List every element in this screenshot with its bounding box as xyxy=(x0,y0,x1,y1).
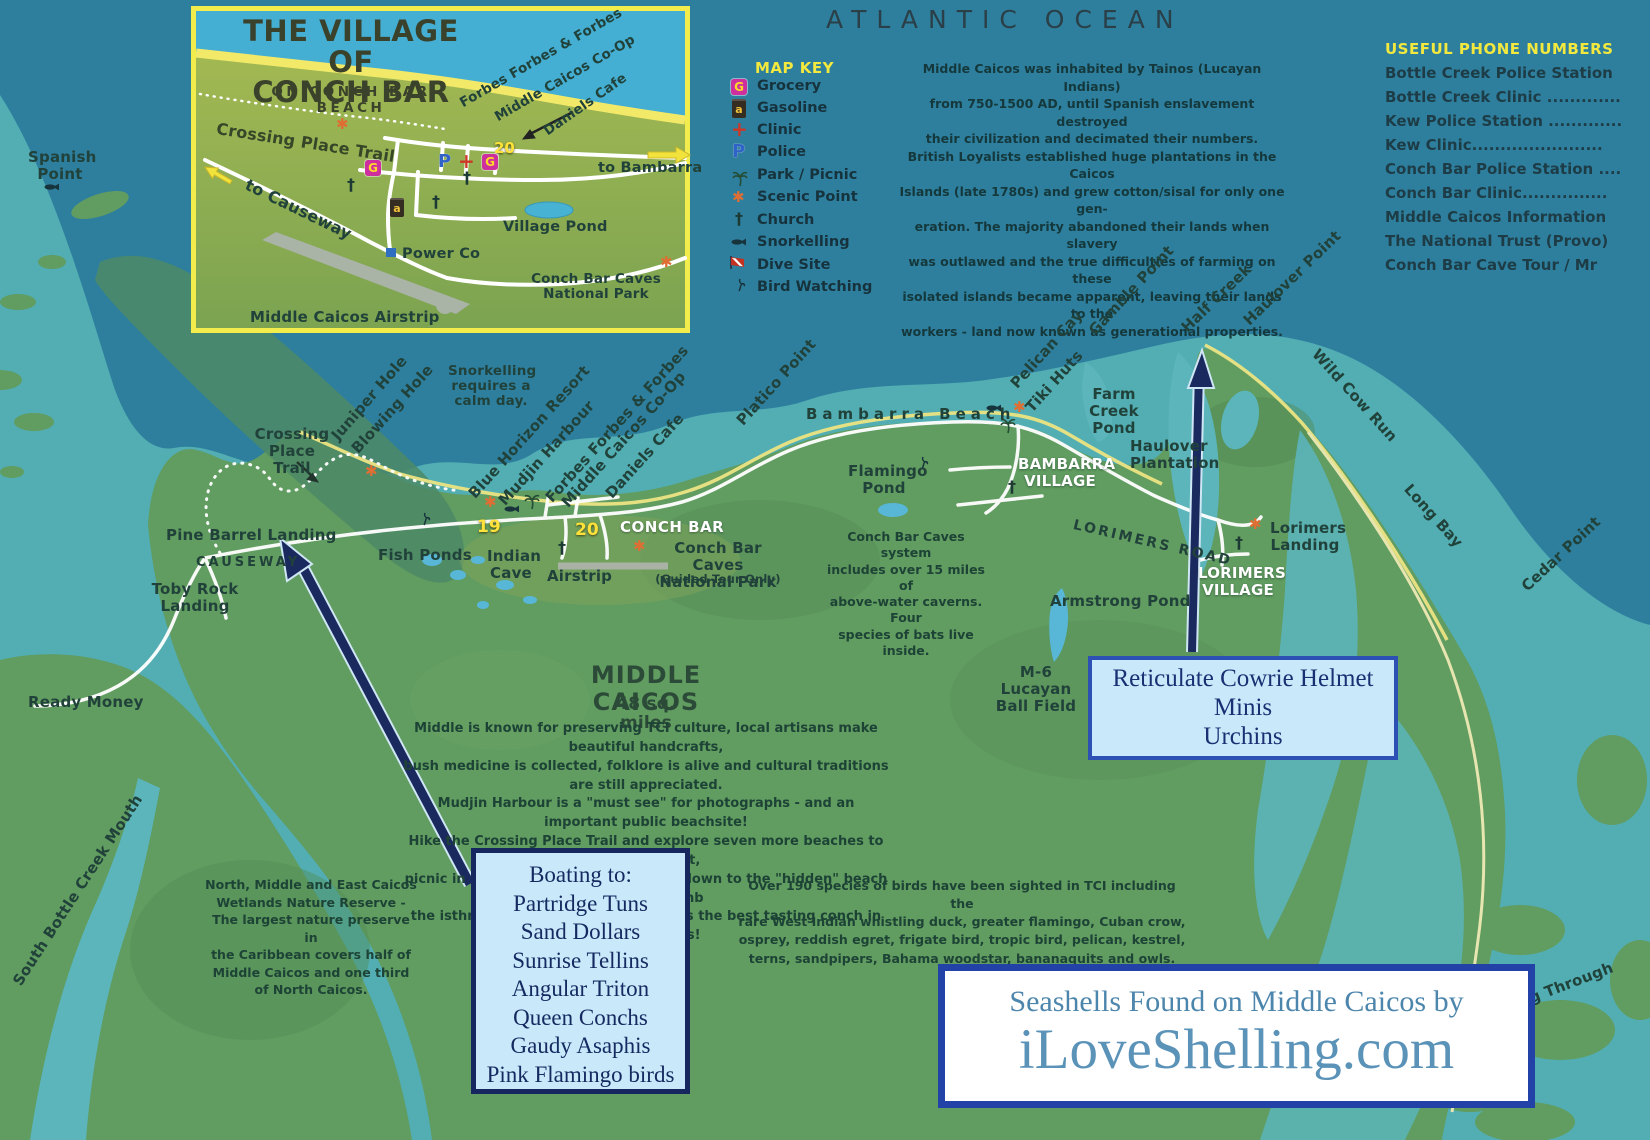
inset-airstrip-label: Middle Caicos Airstrip xyxy=(250,309,440,326)
church-icon: † xyxy=(347,177,355,193)
grocery-icon: G xyxy=(731,79,747,95)
phone-numbers-title: USEFUL PHONE NUMBERS xyxy=(1385,40,1613,58)
church-icon: † xyxy=(1008,479,1016,495)
caves-paragraph: Conch Bar Caves system includes over 15 … xyxy=(822,529,990,659)
key-label-police: Police xyxy=(757,144,806,160)
key-label-dive: Dive Site xyxy=(757,257,831,273)
park-picnic-icon xyxy=(730,165,750,185)
label-pine-barrel: Pine Barrel Landing xyxy=(166,527,337,544)
key-label-grocery: Grocery xyxy=(757,78,821,94)
reticulate-line: Reticulate Cowrie Helmet xyxy=(1092,664,1394,693)
scenic-point-icon: ✱ xyxy=(365,464,378,479)
scenic-point-icon: ✱ xyxy=(336,117,349,132)
phone-item: Conch Bar Cave Tour / Mr xyxy=(1385,256,1597,274)
boating-line: Sunrise Tellins xyxy=(476,947,685,976)
inset-to-bambarra: to Bambarra xyxy=(598,160,702,176)
scenic-point-icon: ✱ xyxy=(633,539,646,554)
shelling-site-name[interactable]: iLoveShelling.com xyxy=(945,1019,1528,1082)
wetlands-paragraph: North, Middle and East Caicos Wetlands N… xyxy=(205,876,417,999)
grocery-icon: G xyxy=(482,154,498,170)
label-haulover-plantation: Haulover Plantation xyxy=(1130,438,1202,472)
police-icon: P xyxy=(732,143,745,161)
phone-item: Kew Police Station ............. xyxy=(1385,112,1622,130)
key-label-gasoline: Gasoline xyxy=(757,100,827,116)
label-bambarra-beach: Bambarra Beach xyxy=(806,406,1015,423)
snorkelling-icon xyxy=(726,232,746,252)
boating-line: Partridge Tuns xyxy=(476,890,685,919)
phone-item: Bottle Creek Police Station xyxy=(1385,64,1613,82)
inset-subtitle: ON CONCH BAR BEACH xyxy=(240,84,462,116)
key-label-church: Church xyxy=(757,212,814,228)
phone-item: The National Trust (Provo) xyxy=(1385,232,1608,250)
phone-item: Conch Bar Police Station .... xyxy=(1385,160,1621,178)
reticulate-annotation-box: Reticulate Cowrie Helmet Minis Urchins xyxy=(1088,656,1398,760)
label-conch-bar: CONCH BAR xyxy=(620,519,724,536)
label-snorkel-note: Snorkelling requires a calm day. xyxy=(448,364,534,409)
boating-line: Angular Triton xyxy=(476,975,685,1004)
label-spanish-point: Spanish Point xyxy=(28,149,92,183)
boating-annotation-box: Boating to: Partridge Tuns Sand Dollars … xyxy=(471,848,690,1094)
shelling-credit-line: Seashells Found on Middle Caicos by xyxy=(945,985,1528,1019)
label-airstrip: Airstrip xyxy=(547,568,612,585)
site-marker-20: 20 xyxy=(575,522,599,539)
label-guided-tour: (Guided Tour Only) xyxy=(650,573,786,586)
label-m6-ball-field: M-6 Lucayan Ball Field xyxy=(988,664,1084,714)
phone-item: Kew Clinic....................... xyxy=(1385,136,1603,154)
church-icon: † xyxy=(558,540,566,556)
boating-line: Queen Conchs xyxy=(476,1004,685,1033)
phone-item: Bottle Creek Clinic ............. xyxy=(1385,88,1621,106)
key-label-park: Park / Picnic xyxy=(757,167,857,183)
clinic-icon: + xyxy=(731,119,748,139)
church-icon: † xyxy=(735,211,743,227)
scenic-point-icon: ✱ xyxy=(660,255,673,270)
label-lorimers-landing: Lorimers Landing xyxy=(1270,520,1340,554)
label-armstrong-pond: Armstrong Pond xyxy=(1050,593,1191,610)
boating-line: Boating to: xyxy=(476,861,685,890)
phone-item: Conch Bar Clinic............... xyxy=(1385,184,1607,202)
birds-paragraph: Over 190 species of birds have been sigh… xyxy=(737,877,1187,968)
key-label-clinic: Clinic xyxy=(757,122,801,138)
shelling-credit-box: Seashells Found on Middle Caicos by iLov… xyxy=(938,964,1535,1108)
label-ready-money: Ready Money xyxy=(28,694,144,711)
boating-line: Sand Dollars xyxy=(476,918,685,947)
scenic-point-icon: ✱ xyxy=(732,190,745,205)
grocery-icon: G xyxy=(365,160,381,176)
church-icon: † xyxy=(463,170,471,186)
inset-caves-np-label: Conch Bar Caves National Park xyxy=(531,272,661,302)
label-bambarra-village: BAMBARRA VILLAGE xyxy=(1018,456,1102,490)
bird-watching-icon xyxy=(731,272,751,292)
gasoline-icon: a xyxy=(390,198,404,217)
key-label-snorkelling: Snorkelling xyxy=(757,234,850,250)
site-marker-19: 19 xyxy=(477,519,501,536)
police-icon: P xyxy=(438,153,451,171)
inset-power-co-label: Power Co xyxy=(402,246,480,262)
label-lorimers-village: LORIMERS VILLAGE xyxy=(1198,565,1278,599)
power-co-icon xyxy=(386,248,396,257)
scenic-point-icon: ✱ xyxy=(1013,400,1026,415)
inset-village-pond-label: Village Pond xyxy=(503,219,608,235)
reticulate-line: Urchins xyxy=(1092,722,1394,751)
church-icon: † xyxy=(432,194,440,210)
label-indian-cave: Indian Cave xyxy=(487,548,535,582)
label-crossing-place-trail: Crossing Place Trail xyxy=(250,426,334,476)
reticulate-line: Minis xyxy=(1092,693,1394,722)
label-causeway: CAUSEWAY xyxy=(196,556,300,571)
boating-line: Gaudy Asaphis xyxy=(476,1032,685,1061)
map-key-title: MAP KEY xyxy=(755,59,834,77)
phone-item: Middle Caicos Information xyxy=(1385,208,1606,226)
scenic-point-icon: ✱ xyxy=(484,495,497,510)
scenic-point-icon: ✱ xyxy=(1249,517,1262,532)
label-toby-rock: Toby Rock Landing xyxy=(150,581,240,615)
key-label-bird: Bird Watching xyxy=(757,279,872,295)
label-farm-creek-pond: Farm Creek Pond xyxy=(1086,386,1142,436)
label-flamingo-pond: Flamingo Pond xyxy=(848,463,920,497)
label-fish-ponds: Fish Ponds xyxy=(378,547,472,564)
dive-site-icon xyxy=(728,254,748,274)
inset-village-pond xyxy=(525,202,573,218)
middle-caicos-map: { "ocean_label": "ATLANTIC OCEAN", "glyp… xyxy=(0,0,1650,1140)
church-icon: † xyxy=(1235,535,1243,551)
gasoline-icon: a xyxy=(732,99,746,118)
key-label-scenic: Scenic Point xyxy=(757,189,858,205)
ocean-title: ATLANTIC OCEAN xyxy=(826,5,1184,34)
boating-line: Pink Flamingo birds xyxy=(476,1061,685,1090)
